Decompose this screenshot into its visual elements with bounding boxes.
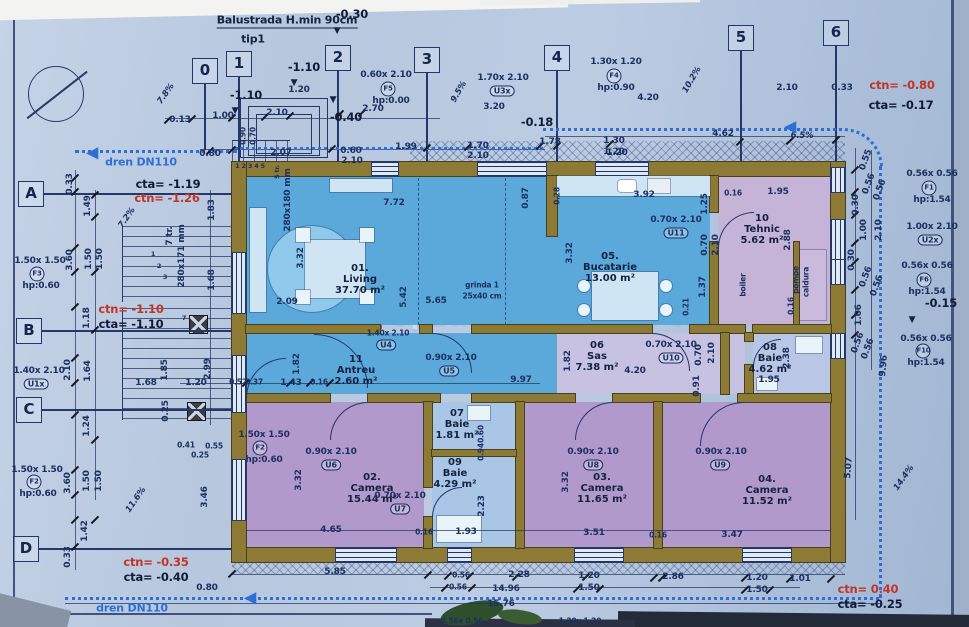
beam-line: [418, 178, 419, 325]
dim-label: 0.91: [692, 375, 702, 396]
wall: [710, 176, 718, 212]
wall: [246, 325, 380, 333]
dim-label: 2.07: [270, 148, 291, 158]
dim-label: 1.68: [207, 269, 217, 290]
dim-label: 1.50: [578, 583, 599, 593]
dim-label: 0.94: [477, 443, 486, 461]
dim-label: 0.13: [169, 115, 190, 125]
dim-label: 2.23: [477, 495, 487, 516]
dim-label: 1.00: [859, 219, 869, 240]
chimney-hatch-2: [188, 403, 205, 420]
dim-label: 1.93: [455, 527, 476, 537]
wall: [424, 402, 432, 487]
room-label-line: 11: [335, 354, 378, 365]
window-tag: F10: [916, 344, 931, 359]
slope-label: 7.8%: [155, 82, 176, 106]
dim-label: 0.30: [847, 249, 857, 270]
dim-label: 2.10: [874, 219, 884, 240]
dim-tick: [827, 575, 836, 584]
level-cta-label: -0.30: [336, 7, 368, 21]
room-label-line: 09: [434, 457, 477, 468]
dim-label: 0.16: [415, 528, 433, 537]
wall: [745, 333, 753, 341]
stair-number: 1: [151, 250, 155, 258]
dim-label: 2.10: [707, 342, 717, 363]
dim-label: 0.70: [700, 234, 710, 255]
grid-column-bubble-0: 0: [192, 58, 218, 84]
dim-label: 0.33: [831, 83, 852, 93]
dim-label: 1.01: [789, 574, 810, 584]
dim-label: 0.16: [649, 531, 667, 540]
dim-tick: [91, 516, 100, 525]
slope-label: 11.6%: [124, 485, 149, 514]
dim-label: 2.28: [508, 570, 529, 580]
room-label-line: Antreu: [335, 365, 378, 376]
north-compass-icon: [28, 66, 84, 122]
level-cta-label: -0.40: [330, 110, 362, 124]
dim-label: 3.32: [296, 247, 306, 268]
dim-label: 0.70x 2.10: [645, 340, 696, 350]
dim-chain-line: [210, 190, 211, 425]
drain-line: [65, 597, 879, 600]
dim-label: 2.10: [711, 234, 721, 255]
dim-label: 0.37: [245, 378, 263, 387]
dim-label: 1.20: [746, 573, 767, 583]
wall: [516, 402, 524, 548]
drain-arrow-icon: ◀: [244, 588, 256, 607]
furniture: [578, 304, 590, 316]
dim-label: 3.20: [483, 102, 504, 112]
dim-label: 1.49: [83, 195, 93, 216]
slope-label: 9.5%: [449, 80, 469, 105]
window: [478, 162, 546, 176]
room-label-line: 02.: [347, 472, 397, 483]
room-label-line: 01.: [335, 263, 385, 274]
room-label-line: 06: [576, 340, 619, 351]
zone-open-strip: [547, 236, 557, 325]
dim-label: 2.88: [783, 229, 793, 250]
window: [831, 220, 845, 260]
dim-label: 0.80: [199, 149, 220, 159]
dim-label: 9.96: [878, 355, 890, 377]
window-tag: F5: [381, 82, 396, 97]
dim-chain-line: [75, 170, 76, 570]
room-label-antreu-11: 11Antreu2.60 m²: [335, 354, 378, 388]
dim-tick: [441, 584, 450, 593]
dim-label: 0.25: [191, 451, 209, 460]
dim-label: 1.50x 1.50: [11, 465, 62, 475]
dim-label: 9.97: [510, 375, 531, 385]
dim-label: 1.50: [82, 470, 92, 491]
dim-label: 1.25: [700, 193, 710, 214]
furniture: [330, 179, 392, 192]
stair-number: 1 2 3 4 5: [235, 162, 265, 170]
furniture: [660, 304, 672, 316]
furniture: [296, 228, 310, 242]
dim-label: 0.56: [449, 583, 467, 592]
level-cta-label: cta= -0.25: [838, 597, 903, 611]
dim-label: 2.38: [782, 347, 792, 368]
stair-number: 7: [182, 314, 186, 322]
dim-label: 1.82: [563, 350, 573, 371]
dim-chain-line: [165, 118, 440, 119]
dim-label: 0.90x 2.10: [695, 447, 746, 457]
dim-label: 0.70: [694, 344, 704, 365]
room-label-line: 1.81 m²: [436, 431, 479, 442]
dim-label: 1.50x 1.50: [14, 256, 65, 266]
room-label-line: 5.62 m²: [741, 236, 784, 247]
level-cta-label: cta= -1.19: [136, 177, 201, 191]
room-label-line: 13.00 m²: [583, 274, 637, 285]
dim-label: 0.90x 2.10: [305, 447, 356, 457]
dim-label: 1.43: [280, 378, 301, 388]
door-tag: U3x: [490, 86, 515, 97]
dim-label: 0.33: [63, 546, 73, 567]
dim-label: 2.86: [662, 572, 683, 582]
dim-label: 0.33: [65, 173, 75, 194]
dim-label: 0.90x 2.10: [567, 447, 618, 457]
dim-label: 1.30x 1.20: [559, 617, 601, 626]
room-label-line: Baie: [436, 419, 479, 430]
door-tag: U9: [710, 460, 730, 471]
dim-label: 0.70x 2.10: [374, 491, 425, 501]
note-label: tip1: [241, 33, 265, 46]
dim-label: 1.70: [467, 141, 488, 151]
level-cta-label: -1.10: [230, 88, 262, 102]
room-label-line: Camera: [577, 483, 627, 494]
room-label-line: 05.: [583, 251, 637, 262]
dim-label: 7 tr.: [165, 226, 175, 245]
drain-label: dren DN110: [96, 602, 168, 615]
door-tag: U4: [376, 340, 396, 351]
dim-label: 1.50: [84, 248, 94, 269]
level-cta-label: cta= -0.40: [124, 570, 189, 584]
dim-label: hp:1.54: [907, 358, 944, 368]
wall: [432, 450, 516, 456]
grid-line: [204, 84, 206, 150]
dim-label: 0.70: [249, 127, 258, 145]
room-label-line: Camera: [742, 485, 792, 496]
dim-label: 4.65: [320, 525, 341, 535]
furniture: [360, 228, 374, 242]
dim-label: 2.10: [266, 108, 287, 118]
room-label-line: 10: [741, 213, 784, 224]
dim-label: 0.60: [340, 146, 361, 156]
dim-label: 1.95: [767, 187, 788, 197]
grid-row-bubble-A: A: [18, 181, 44, 207]
dim-label: 3.32: [565, 242, 575, 263]
dim-label: 1.30: [603, 136, 624, 146]
dim-label: 1.50: [95, 248, 105, 269]
dim-label: 4.62: [712, 129, 733, 139]
dim-label: 1.40x 2.10: [367, 329, 409, 338]
dim-label: 2.10: [467, 151, 488, 161]
level-cta-label: -0.15: [925, 296, 957, 310]
door-tag: U2x: [918, 235, 943, 246]
dim-label: 280x171 mm: [177, 224, 187, 287]
dim-label: 3.47: [721, 530, 742, 540]
door-tag: U1x: [24, 379, 49, 390]
room-label-line: Living: [335, 274, 385, 285]
dim-label: 3.46: [200, 486, 210, 507]
level-marker-icon: ▼: [330, 95, 337, 105]
sheet-edge: [954, 0, 969, 627]
window: [372, 162, 398, 176]
slope-label: 10.2%: [681, 65, 704, 95]
window: [336, 548, 396, 562]
dim-label: 1.95: [758, 375, 779, 385]
level-ctn-label: ctn= -0.35: [123, 555, 188, 569]
dim-label: 280x180 mm: [283, 168, 293, 231]
grid-column-bubble-6: 6: [823, 20, 849, 46]
grid-row-bubble-B: B: [16, 318, 42, 344]
room-label-baie-09: 09Baie4.29 m²: [434, 457, 477, 491]
slope-label: 14.4%: [892, 463, 917, 492]
dim-label: 7.72: [383, 198, 404, 208]
dim-label: 25x40 cm: [463, 292, 502, 301]
door-tag: U7: [390, 504, 410, 515]
window: [232, 253, 246, 313]
dim-label: 0.56x 0.56: [901, 261, 952, 271]
dim-label: hp:0.90: [597, 83, 634, 93]
window: [232, 460, 246, 520]
dim-label: 3.32: [294, 469, 304, 490]
level-marker-icon: ▼: [909, 315, 916, 325]
room-label-line: Tehnic: [741, 224, 784, 235]
dim-label: 1.50x 1.50: [238, 430, 289, 440]
dim-label: grinda 1: [465, 281, 499, 290]
room-label-camera-04: 04.Camera11.52 m²: [742, 474, 792, 508]
dim-label: 0.70x 2.10: [650, 215, 701, 225]
room-label-bucatarie-05: 05.Bucatarie13.00 m²: [583, 251, 637, 285]
window: [831, 168, 845, 192]
dim-label: 3.92: [633, 190, 654, 200]
window-tag: F1: [922, 181, 937, 196]
table-surface-dark: [618, 611, 969, 627]
window-tag: F4: [607, 69, 622, 84]
room-label-line: 04.: [742, 474, 792, 485]
room-label-line: 7.38 m²: [576, 363, 619, 374]
dim-label: pompe: [792, 266, 801, 294]
dim-label: 3.51: [583, 528, 604, 538]
dim-chain-line: [95, 190, 96, 500]
wall: [721, 333, 729, 394]
furniture: [296, 290, 310, 304]
dim-label: 1.64: [83, 360, 93, 381]
drain-line: [543, 128, 793, 131]
dim-label: 0.16: [787, 297, 796, 315]
dim-label: 0.56: [452, 571, 470, 580]
grid-line: [556, 71, 558, 162]
dim-label: 1.78: [539, 137, 560, 147]
dim-label: 0.87: [521, 187, 531, 208]
dim-label: 0.16: [310, 378, 328, 387]
dim-label: 1.37: [698, 276, 708, 297]
window: [831, 334, 845, 358]
dim-label: 0.56x 0.56: [906, 169, 957, 179]
dim-label: 15.76: [487, 599, 514, 609]
dim-chain-line: [65, 603, 880, 604]
wall: [690, 325, 745, 333]
drain-arrow-icon: ◀: [86, 143, 98, 162]
dim-label: 3.32: [561, 471, 571, 492]
dim-label: 1.99: [395, 142, 416, 152]
wall: [654, 402, 662, 548]
zone-vestibule: [729, 333, 745, 394]
dim-label: 1.00: [212, 111, 233, 121]
dim-label: 1.06: [854, 304, 864, 325]
room-label-line: 37.70 m²: [335, 286, 385, 297]
room-label-line: 07: [436, 408, 479, 419]
door-tag: U10: [658, 353, 683, 364]
grid-column-bubble-5: 5: [728, 25, 754, 51]
dim-label: 1.20: [606, 148, 627, 158]
stair-number: 2: [157, 262, 161, 270]
dim-label: 5.85: [324, 567, 345, 577]
dim-label: 1.40x 2.10: [13, 366, 64, 376]
scan-corner-bottom-left: [0, 590, 71, 627]
dim-label: 0.90x 2.10: [425, 353, 476, 363]
level-ctn-label: ctn= 0.40: [838, 582, 899, 596]
dim-label: 1.50: [94, 470, 104, 491]
grid-line: [740, 51, 742, 162]
dim-label: 14.96: [492, 584, 519, 594]
dim-label: 1.83: [207, 199, 217, 220]
furniture: [796, 337, 822, 353]
level-ctn-label: ctn= -1.26: [134, 191, 199, 205]
dim-label: 1.68: [135, 378, 156, 388]
dim-label: 0.56x 0.56: [900, 334, 951, 344]
dim-label: 5.42: [399, 286, 409, 307]
dim-label: hp:0.60: [19, 489, 56, 499]
drain-arrow-icon: ◀: [784, 117, 796, 136]
dim-label: 0.55: [205, 442, 223, 451]
grid-column-bubble-2: 2: [325, 45, 351, 71]
dim-label: 1.20: [578, 571, 599, 581]
window-tag: F2: [253, 441, 268, 456]
stair-number: 5 tr.: [273, 165, 281, 179]
dim-label: 0.30: [851, 194, 861, 215]
dim-label: 0.60x 2.10: [360, 70, 411, 80]
floor-plan-sheet: Spatii Comerciale Cluj 0123456ABCD01.Liv…: [0, 0, 969, 627]
level-cta-label: cta= -0.17: [869, 98, 934, 112]
level-ctn-label: ctn= -1.10: [98, 302, 163, 316]
dim-label: 1.30x 1.20: [590, 57, 641, 67]
scan-edge-top-2: [480, 0, 700, 6]
dim-label: hp:0.60: [22, 281, 59, 291]
door-tag: U11: [663, 228, 688, 239]
window: [575, 548, 623, 562]
window: [596, 162, 648, 176]
dim-label: 1.42: [80, 520, 90, 541]
level-cta-label: -1.10: [288, 60, 320, 74]
dim-label: 1.82: [292, 353, 302, 374]
grid-column-bubble-4: 4: [544, 45, 570, 71]
room-label-line: Baie: [434, 468, 477, 479]
grid-row-bubble-C: C: [16, 397, 42, 423]
dim-label: caldura: [802, 267, 811, 297]
wall: [753, 325, 831, 333]
furniture: [250, 208, 266, 312]
window-tag: F2: [27, 475, 42, 490]
dim-label: 1.85: [160, 359, 170, 380]
grid-row-bubble-D: D: [13, 536, 39, 562]
wall: [472, 325, 652, 333]
dim-label: 0.28: [553, 187, 562, 205]
window-tag: F6: [917, 273, 932, 288]
wall: [547, 176, 557, 236]
room-label-line: 03.: [577, 472, 627, 483]
dim-label: hp:0.60: [245, 455, 282, 465]
dim-label: 0.56x 0.56: [441, 617, 483, 626]
dim-label: 5.07: [843, 457, 855, 479]
dim-label: 1.20: [288, 85, 309, 95]
level-cta-label: -0.18: [521, 115, 553, 129]
dim-label: 1.18: [82, 307, 92, 328]
dim-label: 1.70x 2.10: [477, 73, 528, 83]
window-tag: F3: [30, 267, 45, 282]
window: [831, 260, 845, 284]
dim-label: 1.24: [82, 415, 92, 436]
grid-column-bubble-1: 1: [226, 51, 252, 77]
dim-label: 2.09: [276, 297, 297, 307]
furniture: [660, 280, 672, 292]
dim-label: hp:0.00: [372, 96, 409, 106]
dim-label: 0.90: [239, 127, 248, 145]
dim-label: 0.41: [177, 441, 195, 450]
dim-label: 4.20: [624, 366, 645, 376]
door-tag: U8: [583, 460, 603, 471]
dim-label: 0.80: [196, 583, 217, 593]
dim-label: 0.60: [477, 425, 486, 443]
grid-column-bubble-3: 3: [414, 47, 440, 73]
dim-label: 1.50: [746, 585, 767, 595]
room-label-line: 4.29 m²: [434, 480, 477, 491]
dim-label: 0.25: [161, 400, 171, 421]
dim-label: boiler: [739, 273, 748, 296]
wall: [472, 394, 575, 402]
dim-label: 0.16: [724, 189, 742, 198]
dim-label: 2.10: [341, 156, 362, 166]
level-cta-label: cta= -1.10: [99, 317, 164, 331]
room-label-line: Bucatarie: [583, 262, 637, 273]
dim-label: 2.10: [776, 83, 797, 93]
dim-tick: [468, 584, 477, 593]
wall: [368, 394, 440, 402]
dim-label: 5.65: [425, 296, 446, 306]
room-label-camera-03: 03.Camera11.65 m²: [577, 472, 627, 506]
room-label-baie-07: 07Baie1.81 m²: [436, 408, 479, 442]
room-label-line: 2.60 m²: [335, 377, 378, 388]
dim-label: 2.99: [203, 358, 213, 379]
dim-label: 1.00x 2.10: [906, 222, 957, 232]
level-marker-icon: ▼: [334, 26, 341, 36]
room-label-living-01: 01.Living37.70 m²: [335, 263, 385, 297]
beam-line: [505, 178, 506, 325]
dim-label: hp:1.54: [913, 195, 950, 205]
wall: [738, 394, 831, 402]
sheet-frame-left: [13, 0, 15, 618]
dim-label: 3.60: [65, 249, 75, 270]
level-ctn-label: ctn= -0.80: [869, 78, 934, 92]
stair-number: 3: [163, 273, 167, 281]
room-label-line: 11.52 m²: [742, 497, 792, 508]
drain-label: dren DN110: [105, 156, 177, 169]
wall: [613, 394, 700, 402]
grid-line: [42, 409, 232, 411]
door-tag: U6: [321, 460, 341, 471]
dim-label: 4.20: [637, 93, 658, 103]
